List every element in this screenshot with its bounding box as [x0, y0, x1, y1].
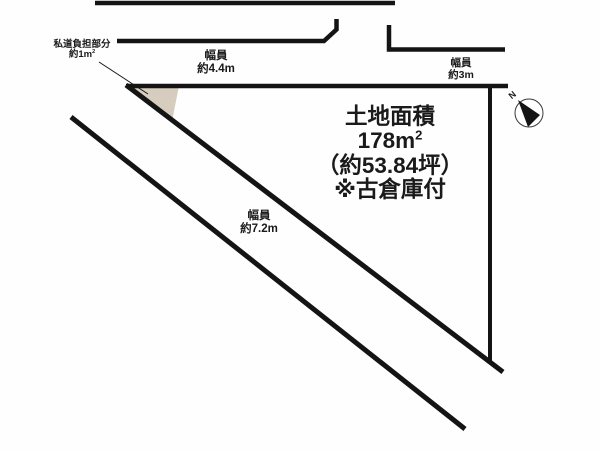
land-area-value: 178m2 [287, 129, 493, 153]
road-4-4m-north-edge [117, 19, 337, 41]
land-area-note: ※古倉庫付 [287, 178, 493, 202]
private-road-label-line2: 約1m2 [34, 50, 130, 60]
private-road-label: 私道負担部分 約1m2 [34, 40, 130, 61]
road-3m-label-line1: 幅員 [424, 58, 498, 70]
land-area-title: 土地面積 [287, 105, 493, 129]
land-area-label: 土地面積 178m2 （約53.84坪） ※古倉庫付 [287, 105, 493, 202]
road-3m-label-line2: 約3m [424, 70, 498, 82]
road-3m-label: 幅員 約3m [424, 58, 498, 82]
land-plot-diagram: N 私道負担部分 約1m2 幅員 約4.4m 幅員 約3m 土地面積 178m2… [0, 0, 600, 450]
road-7-2m-label-line1: 幅員 [216, 210, 302, 223]
leader-line [99, 62, 148, 94]
road-7-2m-label-line2: 約7.2m [216, 223, 302, 236]
land-area-tsubo: （約53.84坪） [287, 154, 493, 178]
road-4-4m-label-line1: 幅員 [175, 50, 257, 63]
road-3m-north-edge [389, 25, 505, 50]
road-7-2m-label: 幅員 約7.2m [216, 210, 302, 236]
road-4-4m-label-line2: 約4.4m [175, 63, 257, 76]
road-4-4m-label: 幅員 約4.4m [175, 50, 257, 76]
compass-north-arrow [515, 99, 543, 127]
